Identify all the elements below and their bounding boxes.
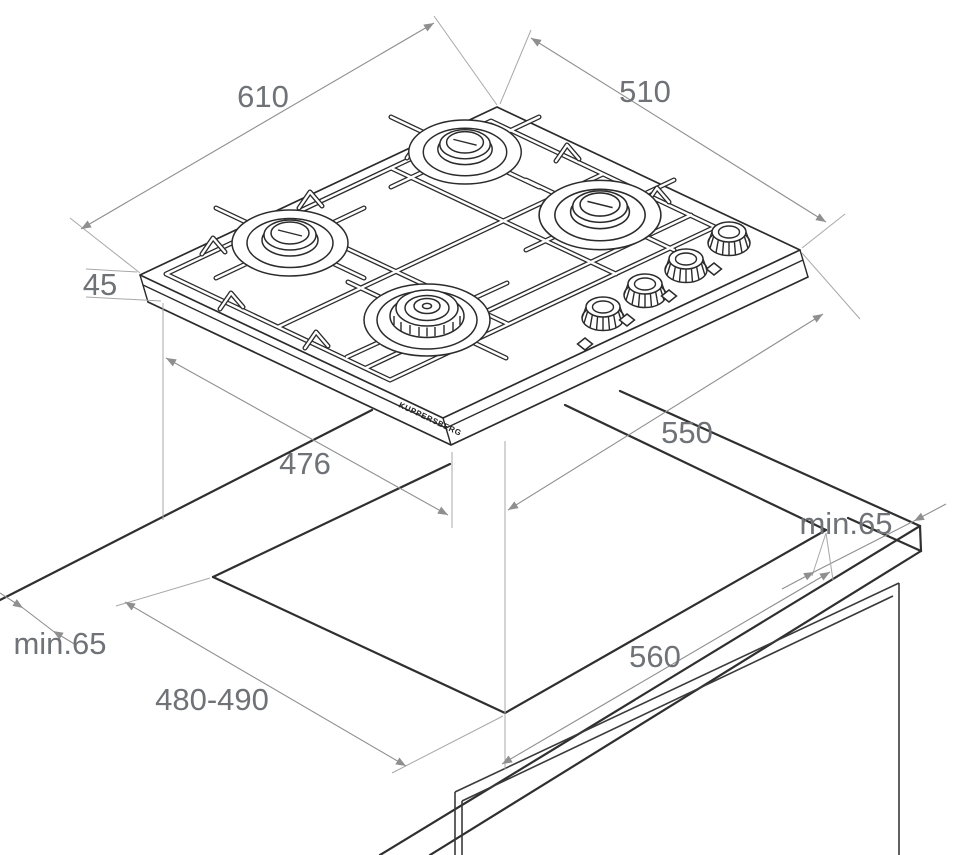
dim-label-480-490: 480-490: [155, 682, 269, 717]
cabinet: [455, 583, 899, 855]
counter-thickness-edge: [430, 551, 921, 855]
dim-label-min65-left: min.65: [13, 626, 106, 661]
dim-label-610: 610: [237, 79, 289, 114]
dim-label-560: 560: [629, 639, 681, 674]
dim-cutout-depth-480-490: 480-490: [116, 578, 503, 773]
dim-label-550: 550: [661, 415, 713, 450]
cutout-rear-edge: [213, 464, 450, 577]
dim-label-45: 45: [83, 267, 117, 302]
counter-front-right-edge: [380, 526, 920, 855]
installation-diagram: KUPPERSBERG 610 510 45 476 550: [0, 0, 970, 855]
burner-front-wok: [364, 284, 490, 356]
knob-1: [582, 297, 624, 331]
counter-rear-left-edge: [0, 410, 372, 600]
diagram-canvas: KUPPERSBERG 610 510 45 476 550: [0, 0, 970, 855]
knob-3: [665, 249, 707, 283]
dim-label-510: 510: [619, 74, 671, 109]
knob-2: [624, 274, 666, 308]
cabinet-top-inner-edge: [462, 596, 893, 801]
countertop: [0, 391, 921, 855]
dim-label-min65-right: min.65: [799, 506, 892, 541]
burner-left: [232, 210, 348, 276]
gas-hob: KUPPERSBERG: [140, 107, 808, 445]
cutout-front-edge: [505, 530, 826, 713]
knob-4: [708, 222, 750, 256]
dim-label-476: 476: [279, 446, 331, 481]
burner-rear: [409, 120, 522, 184]
dim-clearance-left-min65: min.65: [0, 593, 107, 661]
burner-right: [539, 180, 661, 249]
counter-corner-vertical: [920, 526, 921, 551]
